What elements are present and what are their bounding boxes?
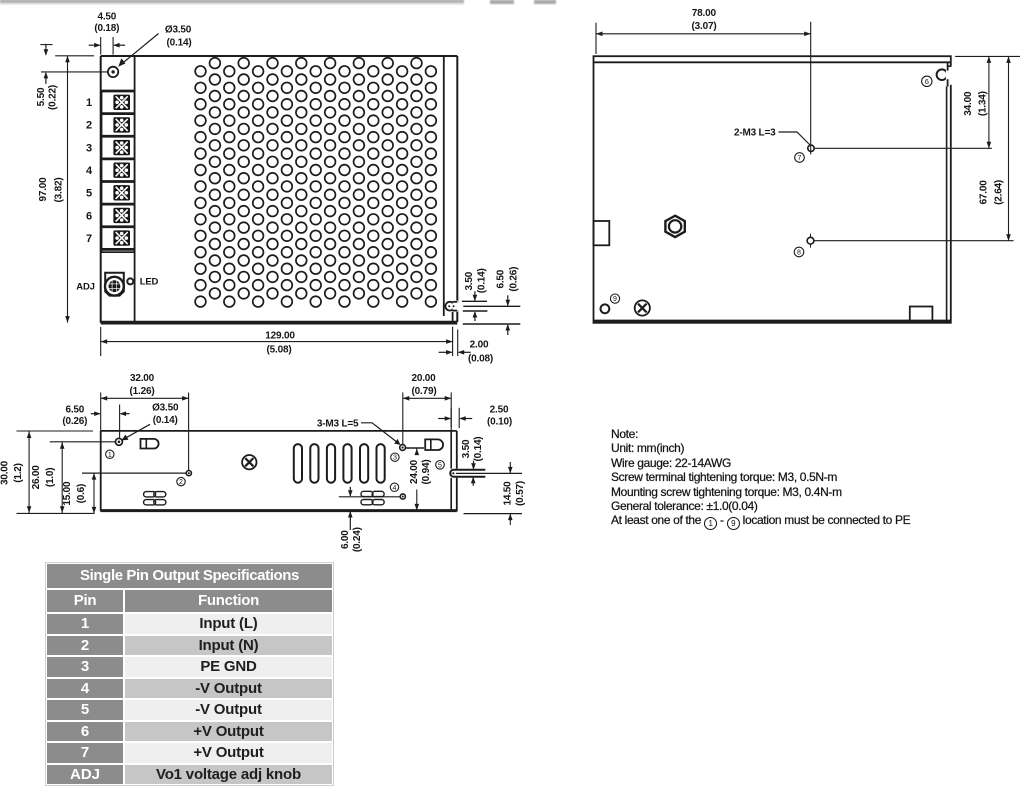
svg-text:Ø3.50: Ø3.50	[165, 25, 192, 36]
svg-text:78.00: 78.00	[692, 8, 717, 19]
svg-text:2: 2	[179, 479, 183, 486]
svg-text:Ø3.50: Ø3.50	[152, 403, 179, 414]
svg-text:(1.26): (1.26)	[130, 386, 155, 397]
svg-text:9: 9	[613, 296, 617, 303]
svg-text:(0.6): (0.6)	[76, 484, 87, 504]
svg-text:6.50: 6.50	[496, 269, 507, 288]
svg-text:(0.14): (0.14)	[153, 415, 178, 426]
svg-text:4.50: 4.50	[97, 12, 116, 23]
svg-text:(0.26): (0.26)	[509, 267, 520, 292]
svg-text:3.50: 3.50	[464, 271, 475, 290]
svg-text:8: 8	[797, 250, 801, 257]
svg-text:3.50: 3.50	[461, 439, 472, 458]
svg-text:6: 6	[925, 77, 929, 86]
svg-text:(3.07): (3.07)	[692, 21, 717, 32]
svg-text:30.00: 30.00	[0, 460, 11, 485]
svg-text:(0.08): (0.08)	[468, 354, 493, 365]
svg-text:5: 5	[438, 462, 442, 469]
svg-text:(0.14): (0.14)	[476, 268, 487, 293]
svg-text:4: 4	[86, 165, 93, 177]
svg-text:7: 7	[798, 155, 802, 162]
svg-text:2.00: 2.00	[470, 339, 489, 350]
svg-text:3: 3	[86, 142, 92, 154]
svg-text:LED: LED	[140, 277, 159, 288]
svg-text:(2.64): (2.64)	[993, 180, 1004, 205]
svg-text:(0.10): (0.10)	[487, 417, 512, 428]
svg-text:(0.94): (0.94)	[421, 460, 432, 485]
svg-text:5.50: 5.50	[36, 87, 47, 106]
svg-text:(0.14): (0.14)	[167, 38, 192, 49]
svg-text:ADJ: ADJ	[76, 282, 94, 293]
svg-text:20.00: 20.00	[411, 373, 436, 384]
svg-text:24.00: 24.00	[409, 459, 420, 484]
svg-text:7: 7	[86, 233, 92, 245]
svg-text:32.00: 32.00	[130, 373, 155, 384]
svg-text:(0.22): (0.22)	[47, 85, 58, 110]
svg-text:26.00: 26.00	[31, 465, 42, 490]
svg-text:3: 3	[393, 455, 397, 462]
svg-text:(5.08): (5.08)	[267, 345, 292, 356]
svg-text:2: 2	[86, 120, 92, 132]
svg-text:(3.82): (3.82)	[54, 178, 65, 203]
svg-text:5: 5	[86, 188, 92, 200]
svg-text:(1.34): (1.34)	[977, 91, 988, 116]
svg-text:3-M3 L=5: 3-M3 L=5	[317, 419, 359, 430]
svg-text:97.00: 97.00	[38, 177, 49, 202]
svg-text:6: 6	[86, 210, 92, 222]
svg-text:34.00: 34.00	[963, 91, 974, 116]
svg-text:6.00: 6.00	[340, 530, 351, 549]
svg-text:2.50: 2.50	[490, 405, 509, 416]
svg-text:6.50: 6.50	[65, 405, 84, 416]
svg-text:(0.24): (0.24)	[352, 527, 363, 552]
svg-text:67.00: 67.00	[979, 180, 990, 205]
svg-text:(0.79): (0.79)	[412, 386, 437, 397]
svg-text:14.50: 14.50	[503, 481, 514, 506]
svg-text:1: 1	[86, 97, 92, 109]
svg-text:(1.2): (1.2)	[13, 463, 24, 483]
svg-text:129.00: 129.00	[265, 330, 295, 341]
svg-text:4: 4	[393, 485, 397, 492]
svg-text:(0.14): (0.14)	[473, 437, 484, 462]
svg-text:1: 1	[108, 452, 112, 459]
svg-text:2-M3 L=3: 2-M3 L=3	[734, 128, 776, 139]
svg-text:15.00: 15.00	[62, 481, 73, 506]
svg-text:(0.26): (0.26)	[62, 416, 87, 427]
svg-text:(1.0): (1.0)	[45, 468, 56, 488]
svg-text:(0.57): (0.57)	[515, 481, 526, 506]
svg-text:(0.18): (0.18)	[94, 23, 119, 34]
